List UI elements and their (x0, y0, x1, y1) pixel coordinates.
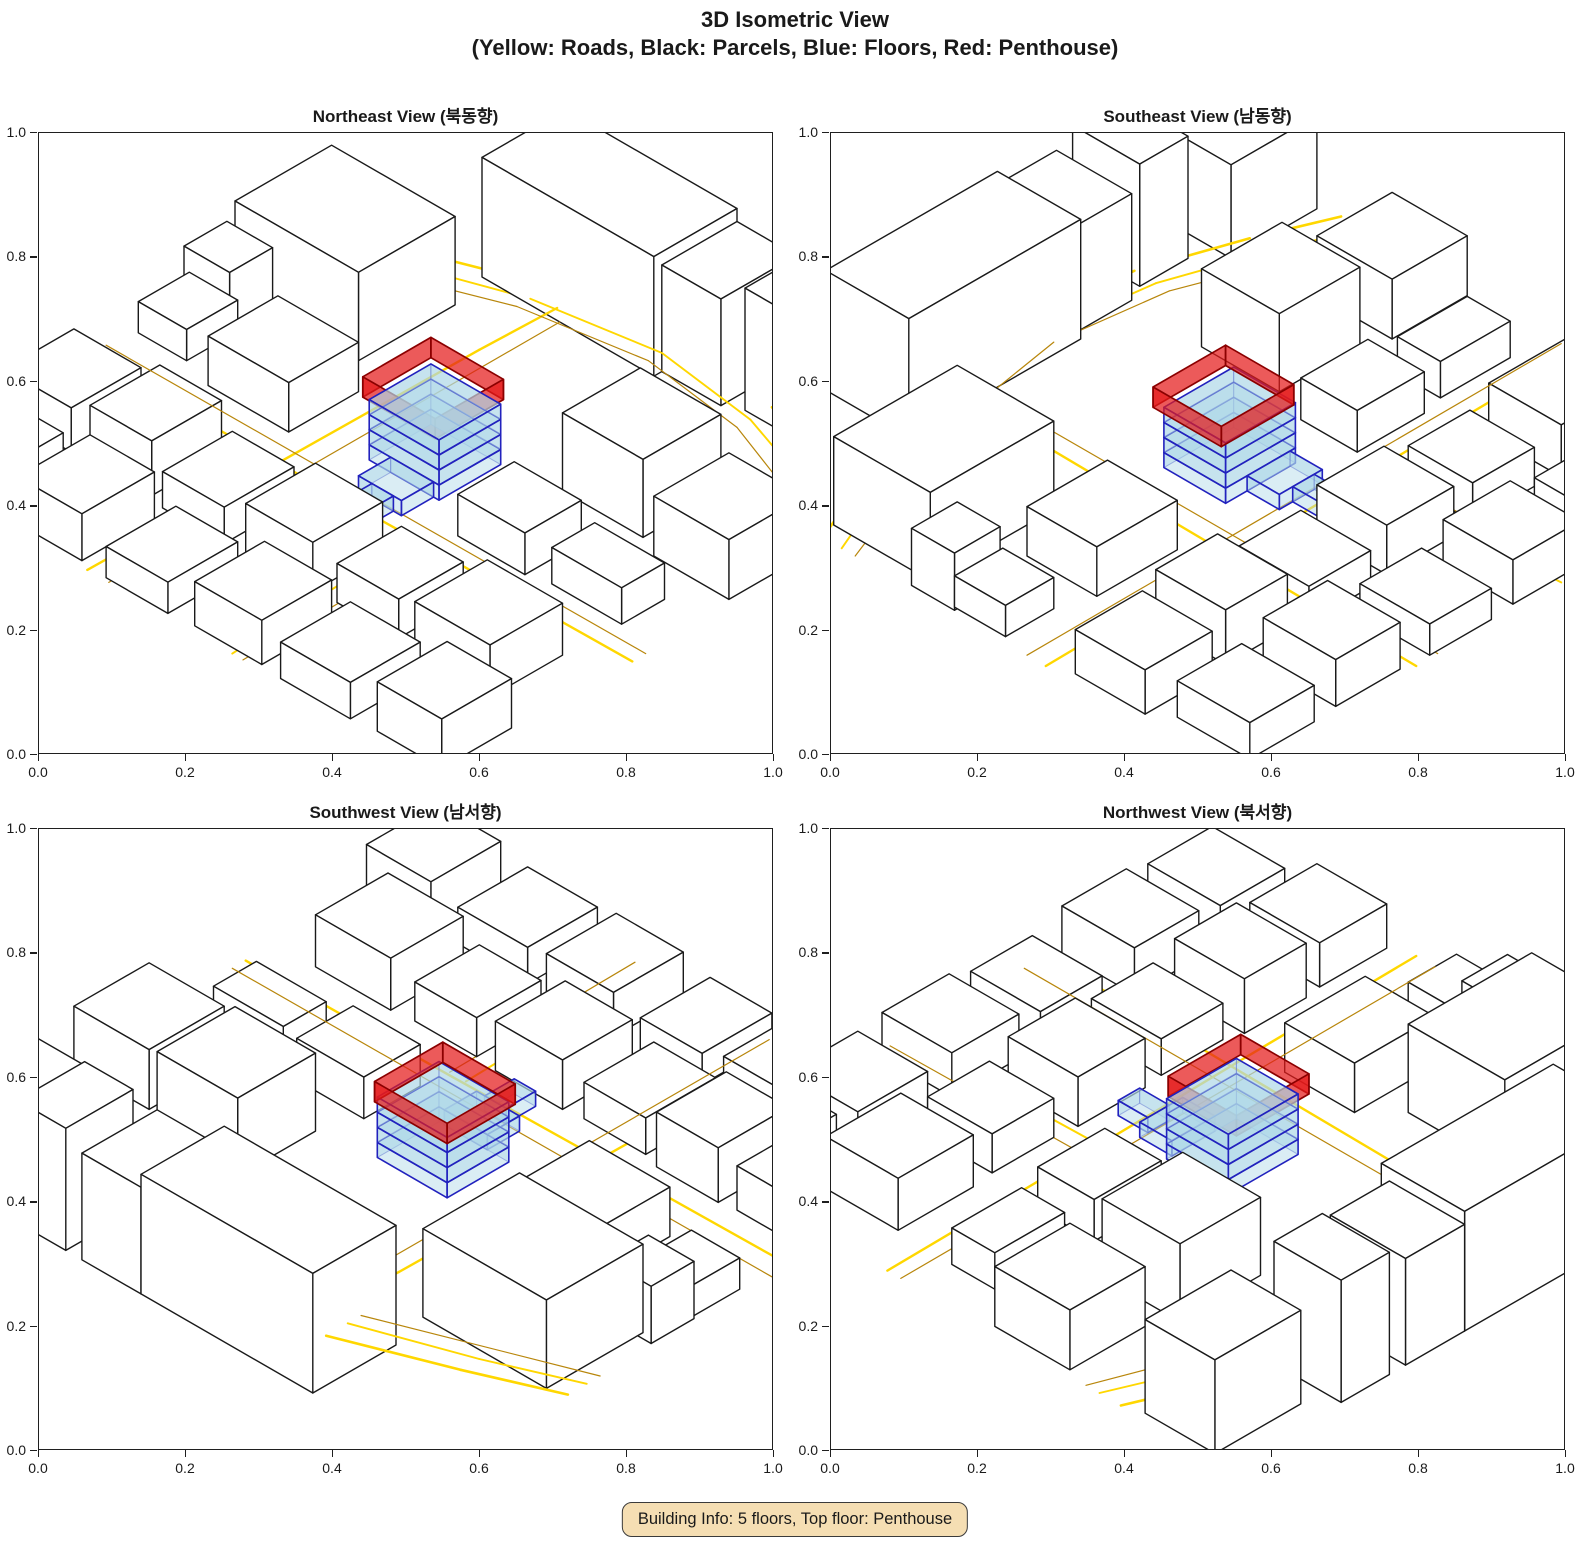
x-axis-tick-label: 1.0 (1555, 764, 1574, 780)
y-axis-tick-label: 0.2 (0, 1318, 26, 1334)
y-axis-tickmark (30, 256, 37, 257)
subplot-title-southeast: Southeast View (남동향) (830, 102, 1565, 127)
y-axis-tick-label: 1.0 (0, 124, 26, 140)
x-axis-tickmark (332, 1450, 333, 1457)
y-axis-tick-label: 0.8 (0, 944, 26, 960)
x-axis-tickmark (1124, 1450, 1125, 1457)
x-axis-tickmark (626, 754, 627, 761)
y-axis-tick-label: 0.4 (778, 497, 818, 513)
x-axis-tickmark (626, 1450, 627, 1457)
subplot-southeast: Southeast View (남동향) 0.00.20.40.60.81.00… (830, 132, 1565, 754)
subplot-title-northeast: Northeast View (북동향) (38, 102, 773, 127)
axes-frame-northeast (38, 132, 773, 754)
y-axis-tick-label: 0.8 (0, 248, 26, 264)
y-axis-tickmark (30, 630, 37, 631)
y-axis-tick-label: 0.8 (778, 248, 818, 264)
x-axis-tickmark (773, 1450, 774, 1457)
y-axis-tickmark (30, 1450, 37, 1451)
y-axis-tickmark (822, 1077, 829, 1078)
y-axis-tickmark (822, 1326, 829, 1327)
y-axis-tickmark (822, 1450, 829, 1451)
subplot-northeast: Northeast View (북동향) 0.00.20.40.60.81.00… (38, 132, 773, 754)
x-axis-tickmark (1271, 754, 1272, 761)
y-axis-tickmark (822, 754, 829, 755)
y-axis-tick-label: 0.6 (778, 1069, 818, 1085)
y-axis-tickmark (30, 1201, 37, 1202)
y-axis-tickmark (30, 828, 37, 829)
y-axis-tickmark (822, 828, 829, 829)
subplot-northwest: Northwest View (북서향) 0.00.20.40.60.81.00… (830, 828, 1565, 1450)
x-axis-tickmark (830, 1450, 831, 1457)
x-axis-tick-label: 0.0 (820, 764, 839, 780)
figure-header: 3D Isometric View (Yellow: Roads, Black:… (0, 6, 1590, 61)
x-axis-tickmark (1565, 1450, 1566, 1457)
y-axis-tick-label: 1.0 (778, 820, 818, 836)
x-axis-tickmark (830, 754, 831, 761)
y-axis-tickmark (822, 630, 829, 631)
x-axis-tick-label: 0.6 (1261, 1460, 1280, 1476)
y-axis-tick-label: 0.2 (778, 622, 818, 638)
x-axis-tick-label: 0.8 (1408, 764, 1427, 780)
y-axis-tick-label: 0.6 (0, 373, 26, 389)
subplot-southwest: Southwest View (남서향) 0.00.20.40.60.81.00… (38, 828, 773, 1450)
y-axis-tick-label: 0.8 (778, 944, 818, 960)
y-axis-tickmark (822, 381, 829, 382)
figure-subtitle: (Yellow: Roads, Black: Parcels, Blue: Fl… (0, 34, 1590, 62)
y-axis-tickmark (822, 132, 829, 133)
y-axis-tick-label: 0.6 (0, 1069, 26, 1085)
y-axis-tickmark (30, 754, 37, 755)
x-axis-tickmark (773, 754, 774, 761)
isometric-scene-northwest (831, 829, 1565, 1450)
x-axis-tick-label: 0.4 (322, 1460, 341, 1476)
x-axis-tickmark (185, 754, 186, 761)
x-axis-tick-label: 0.0 (28, 1460, 47, 1476)
x-axis-tickmark (332, 754, 333, 761)
y-axis-tickmark (30, 1326, 37, 1327)
y-axis-tick-label: 1.0 (0, 820, 26, 836)
x-axis-tickmark (38, 754, 39, 761)
y-axis-tick-label: 0.4 (0, 497, 26, 513)
x-axis-tick-label: 0.8 (616, 764, 635, 780)
x-axis-tick-label: 0.6 (1261, 764, 1280, 780)
axes-frame-northwest (830, 828, 1565, 1450)
isometric-scene-northeast (39, 133, 773, 754)
isometric-scene-southwest (39, 829, 773, 1450)
axes-frame-southeast (830, 132, 1565, 754)
building-info-badge: Building Info: 5 floors, Top floor: Pent… (622, 1502, 968, 1537)
x-axis-tick-label: 0.8 (616, 1460, 635, 1476)
x-axis-tick-label: 0.6 (469, 764, 488, 780)
y-axis-tickmark (30, 381, 37, 382)
y-axis-tick-label: 1.0 (778, 124, 818, 140)
x-axis-tick-label: 0.6 (469, 1460, 488, 1476)
axes-frame-southwest (38, 828, 773, 1450)
x-axis-tick-label: 0.4 (1114, 764, 1133, 780)
y-axis-tick-label: 0.2 (0, 622, 26, 638)
x-axis-tick-label: 0.8 (1408, 1460, 1427, 1476)
y-axis-tick-label: 0.0 (778, 1442, 818, 1458)
figure-title: 3D Isometric View (0, 6, 1590, 34)
y-axis-tickmark (822, 505, 829, 506)
y-axis-tickmark (30, 952, 37, 953)
y-axis-tick-label: 0.4 (778, 1193, 818, 1209)
y-axis-tickmark (30, 1077, 37, 1078)
x-axis-tickmark (479, 754, 480, 761)
x-axis-tick-label: 1.0 (1555, 1460, 1574, 1476)
y-axis-tickmark (822, 952, 829, 953)
y-axis-tick-label: 0.0 (0, 746, 26, 762)
x-axis-tick-label: 0.2 (175, 1460, 194, 1476)
x-axis-tick-label: 0.2 (175, 764, 194, 780)
x-axis-tick-label: 0.2 (967, 1460, 986, 1476)
y-axis-tickmark (30, 505, 37, 506)
x-axis-tickmark (1271, 1450, 1272, 1457)
x-axis-tickmark (977, 754, 978, 761)
y-axis-tick-label: 0.0 (778, 746, 818, 762)
y-axis-tickmark (822, 1201, 829, 1202)
x-axis-tick-label: 1.0 (763, 764, 782, 780)
x-axis-tick-label: 0.4 (1114, 1460, 1133, 1476)
y-axis-tick-label: 0.0 (0, 1442, 26, 1458)
x-axis-tick-label: 1.0 (763, 1460, 782, 1476)
y-axis-tickmark (30, 132, 37, 133)
x-axis-tickmark (1565, 754, 1566, 761)
x-axis-tick-label: 0.4 (322, 764, 341, 780)
x-axis-tickmark (479, 1450, 480, 1457)
x-axis-tickmark (977, 1450, 978, 1457)
x-axis-tick-label: 0.2 (967, 764, 986, 780)
figure: 3D Isometric View (Yellow: Roads, Black:… (0, 0, 1590, 1560)
x-axis-tickmark (185, 1450, 186, 1457)
y-axis-tick-label: 0.4 (0, 1193, 26, 1209)
y-axis-tick-label: 0.6 (778, 373, 818, 389)
x-axis-tickmark (38, 1450, 39, 1457)
y-axis-tick-label: 0.2 (778, 1318, 818, 1334)
subplot-title-northwest: Northwest View (북서향) (830, 798, 1565, 823)
subplot-title-southwest: Southwest View (남서향) (38, 798, 773, 823)
x-axis-tick-label: 0.0 (820, 1460, 839, 1476)
isometric-scene-southeast (831, 133, 1565, 754)
y-axis-tickmark (822, 256, 829, 257)
x-axis-tick-label: 0.0 (28, 764, 47, 780)
x-axis-tickmark (1418, 1450, 1419, 1457)
x-axis-tickmark (1124, 754, 1125, 761)
x-axis-tickmark (1418, 754, 1419, 761)
